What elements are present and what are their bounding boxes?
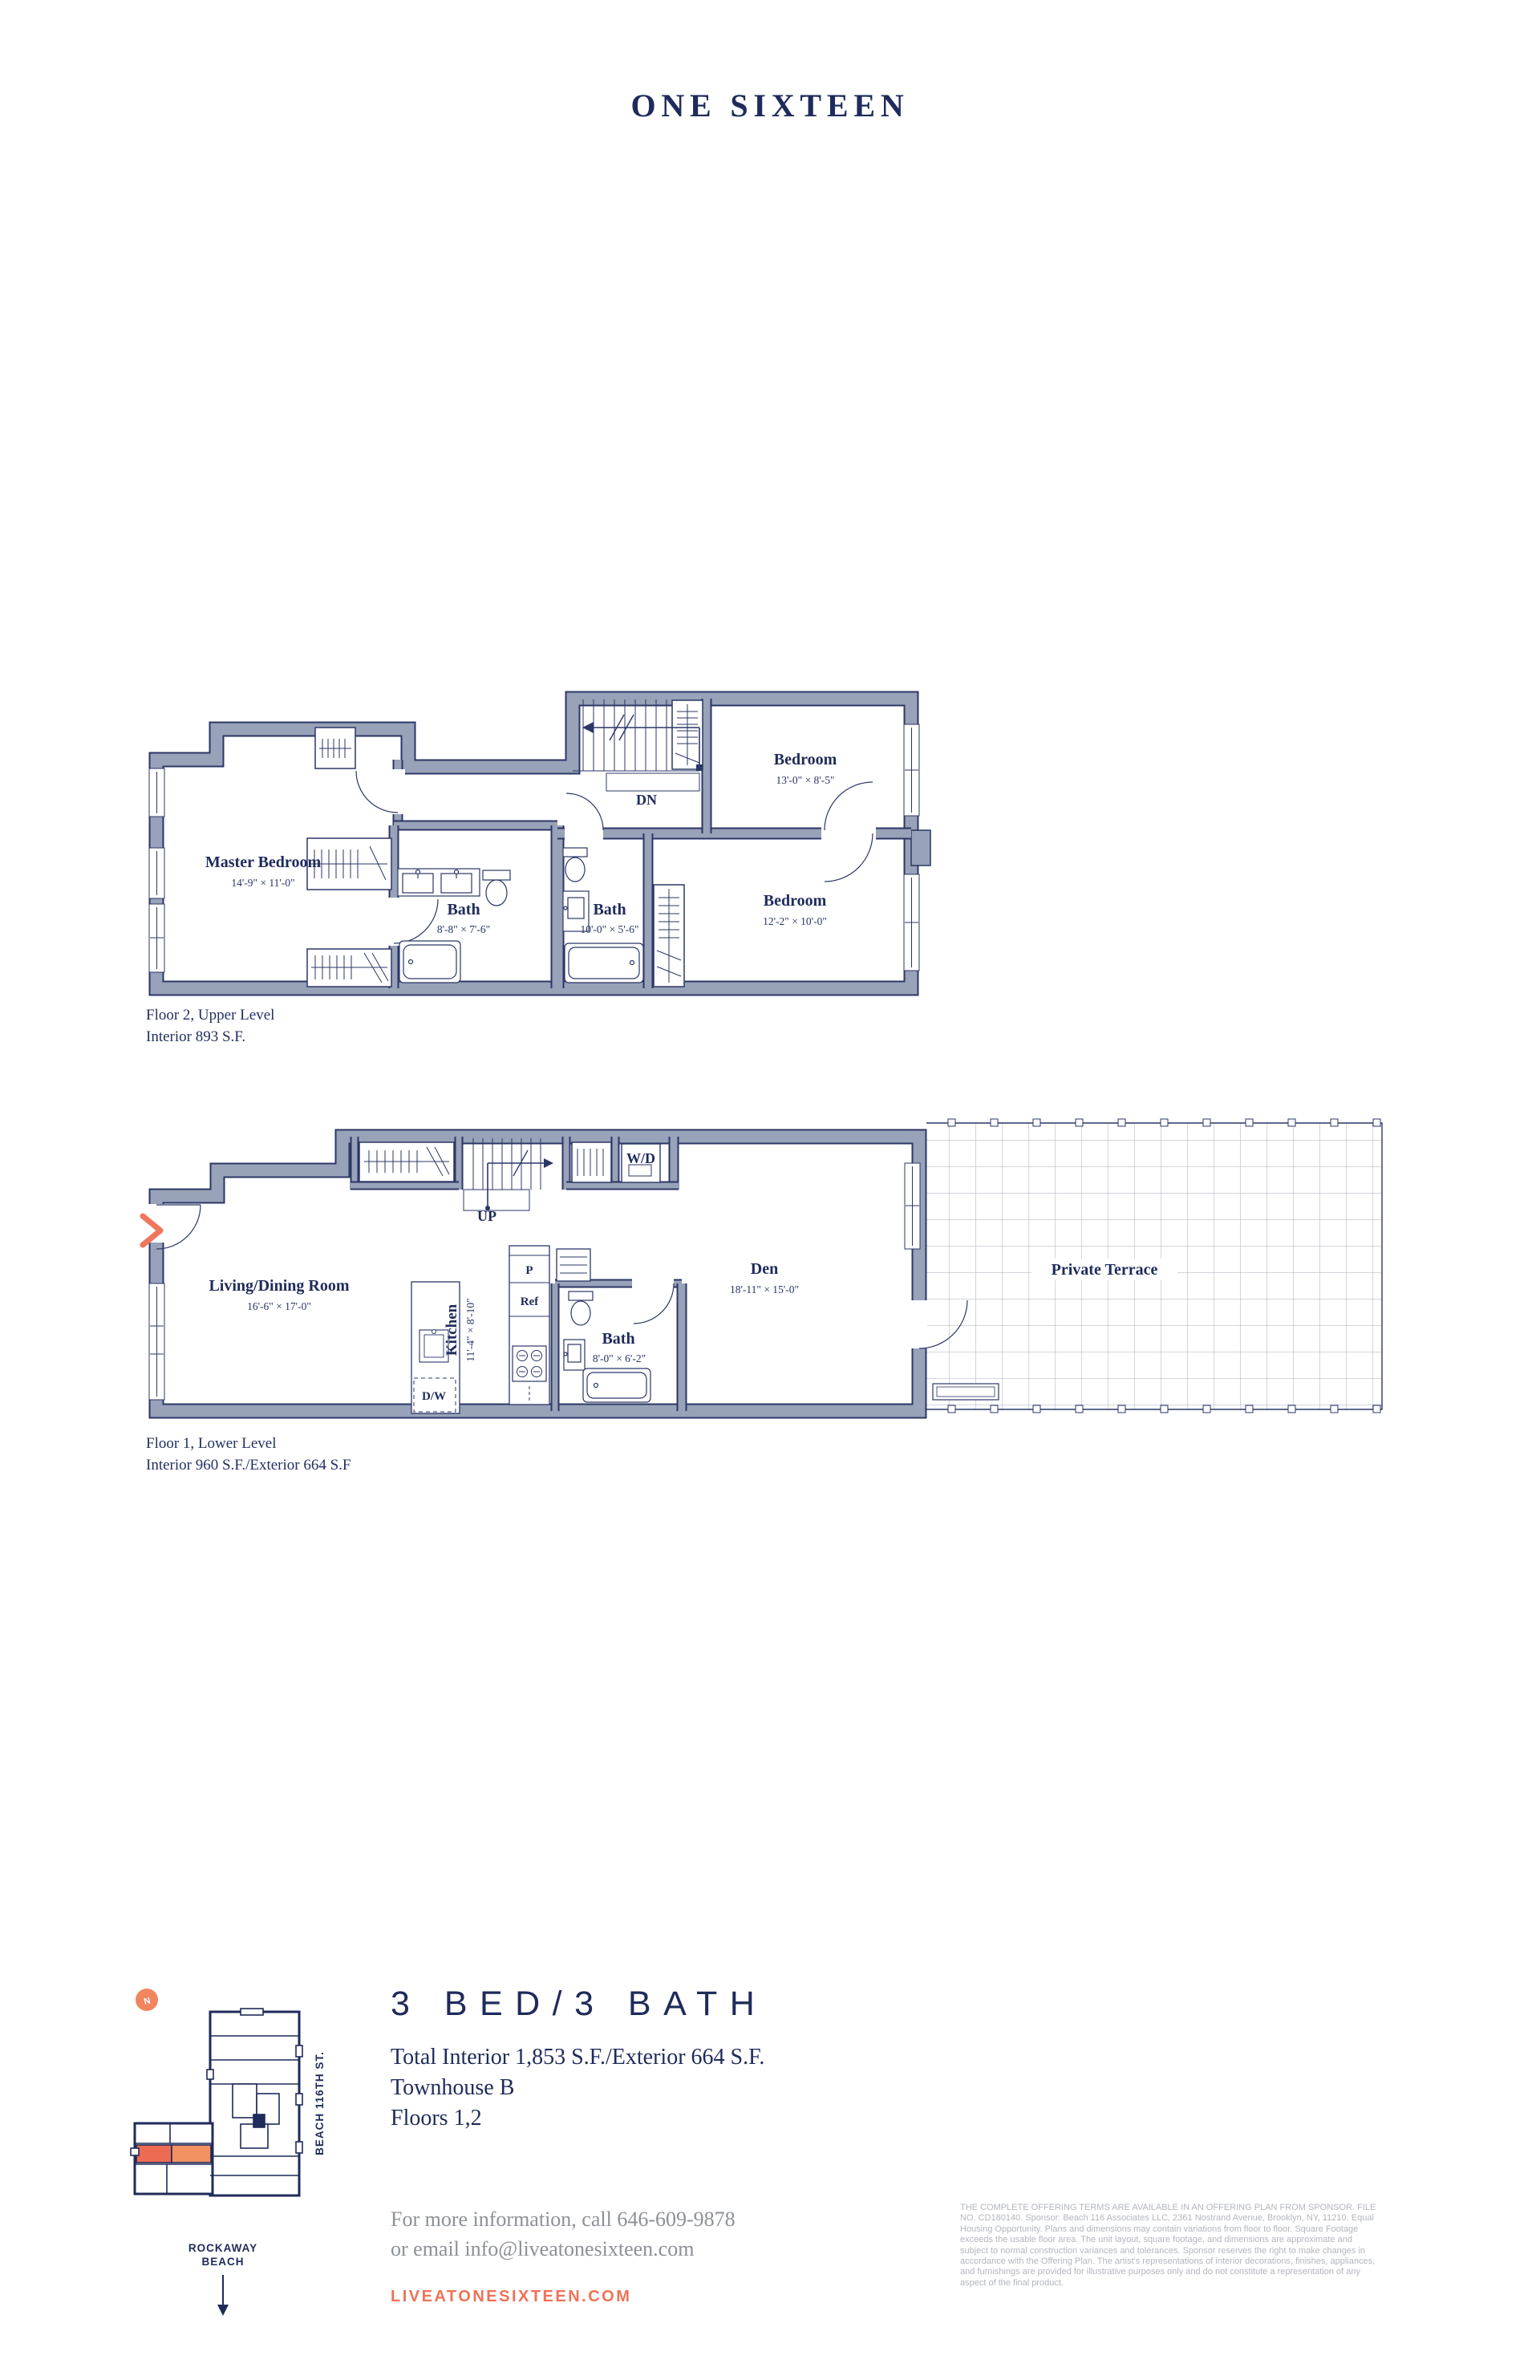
stair-down-label: DN [636,792,657,808]
room-label-bedroom1: Bedroom [774,751,837,768]
floor1-caption: Floor 1, Lower Level Interior 960 S.F./E… [146,1433,351,1476]
dishwasher-label: D/W [422,1390,446,1403]
keymap-building [135,2009,302,2196]
room-label-bath2: Bath [593,901,626,918]
unit-info: Total Interior 1,853 S.F./Exterior 664 S… [391,2042,764,2134]
room-dims-kitchen: 11'-4" × 8'-10" [464,1298,476,1361]
room-label-bath1: Bath [447,901,480,918]
street-label: BEACH 116TH ST. [314,2051,326,2155]
room-dims-bath2: 10'-0" × 5'-6" [581,923,639,935]
pantry-label: P [525,1264,533,1277]
page-title: ONE SIXTEEN [0,87,1540,124]
floor1-caption-line2: Interior 960 S.F./Exterior 664 S.F [146,1454,351,1476]
fridge-label: Ref [521,1295,539,1308]
floor2-caption: Floor 2, Upper Level Interior 893 S.F. [146,1004,274,1048]
unit-info-name: Townhouse B [391,2073,764,2103]
contact-email-line: or email info@liveatonesixteen.com [391,2234,736,2264]
washer-dryer-label: W/D [626,1150,655,1166]
unit-info-floors: Floors 1,2 [391,2103,764,2134]
website-link[interactable]: LIVEATONESIXTEEN.COM [391,2288,631,2306]
terrace: Private Terrace [926,1119,1382,1413]
beach-label-line1: ROCKAWAY [188,2242,257,2254]
room-label-living: Living/Dining Room [209,1277,349,1295]
legal-disclaimer: THE COMPLETE OFFERING TERMS ARE AVAILABL… [960,2203,1380,2289]
room-dims-den: 18'-11" × 15'-0" [730,1283,799,1295]
room-label-terrace: Private Terrace [1052,1261,1158,1279]
room-dims-bedroom2: 12'-2" × 10'-0" [763,915,827,927]
floor1-caption-line1: Floor 1, Lower Level [146,1433,351,1454]
south-arrow-icon [217,2275,229,2316]
room-dims-bath1: 8'-8" × 7'-6" [437,923,490,935]
floor2-caption-line1: Floor 2, Upper Level [146,1004,274,1026]
unit-highlight [131,2145,211,2163]
floorplan-sheet: ONE SIXTEEN [0,0,1540,2380]
room-dims-bath: 8'-0" × 6'-2" [593,1352,646,1364]
unit-info-total: Total Interior 1,853 S.F./Exterior 664 S… [391,2042,764,2073]
room-label-bath: Bath [602,1330,634,1348]
room-dims-bedroom1: 13'-0" × 8'-5" [776,774,835,786]
floor2-plan: Master Bedroom 14'-9" × 11'-0" Bath 8'-8… [143,676,937,1005]
contact-phone-line: For more information, call 646-609-9878 [391,2204,736,2234]
stair-up-label: UP [477,1208,496,1224]
room-label-den: Den [751,1260,778,1278]
unit-headline: 3 BED/3 BATH [391,1985,767,2024]
beach-label-line2: BEACH [201,2256,244,2268]
north-indicator-icon: N [136,1989,158,2011]
keymap: N [120,1965,337,2322]
room-dims-living: 16'-6" × 17'-0" [247,1300,311,1312]
floor2-caption-line2: Interior 893 S.F. [146,1026,274,1048]
floor1-plan: Private Terrace [128,1113,1392,1434]
room-dims-master: 14'-9" × 11'-0" [231,877,294,889]
room-label-bedroom2: Bedroom [764,892,827,910]
room-label-master: Master Bedroom [205,853,322,871]
contact-info: For more information, call 646-609-9878 … [391,2204,736,2264]
room-label-kitchen: Kitchen [444,1304,460,1356]
